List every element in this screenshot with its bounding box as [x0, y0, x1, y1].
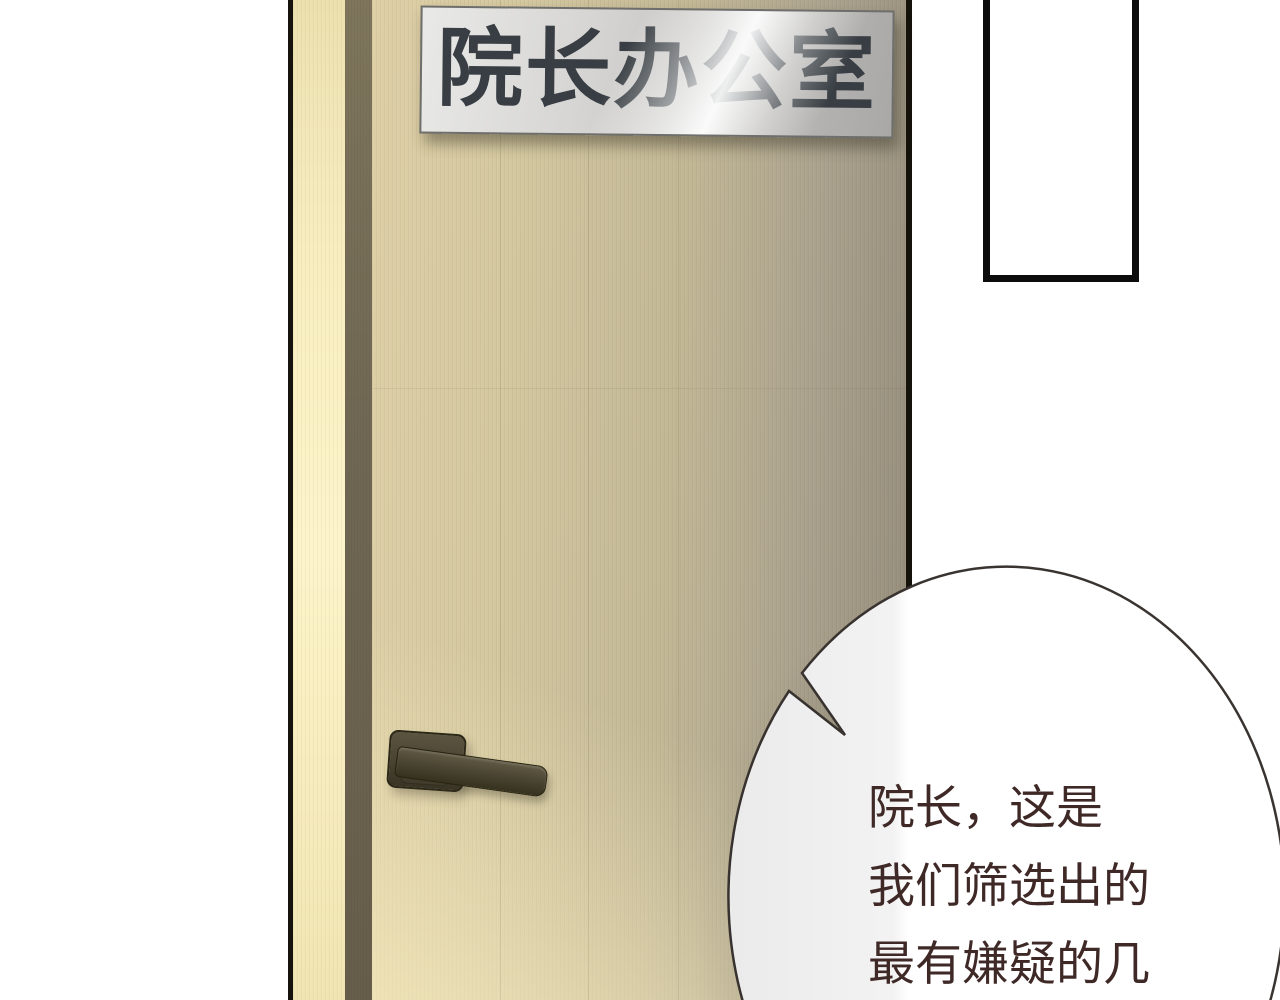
comic-page: 院长办公室 院长，这是 我们筛选出的 最有嫌疑的几	[0, 0, 1280, 1000]
speech-line: 我们筛选出的	[868, 848, 1208, 926]
speech-line: 院长，这是	[868, 770, 1208, 848]
speech-bubble-shading	[600, 560, 908, 1000]
speech-line: 最有嫌疑的几	[868, 926, 1208, 1000]
speech-text: 院长，这是 我们筛选出的 最有嫌疑的几	[868, 770, 1208, 1000]
